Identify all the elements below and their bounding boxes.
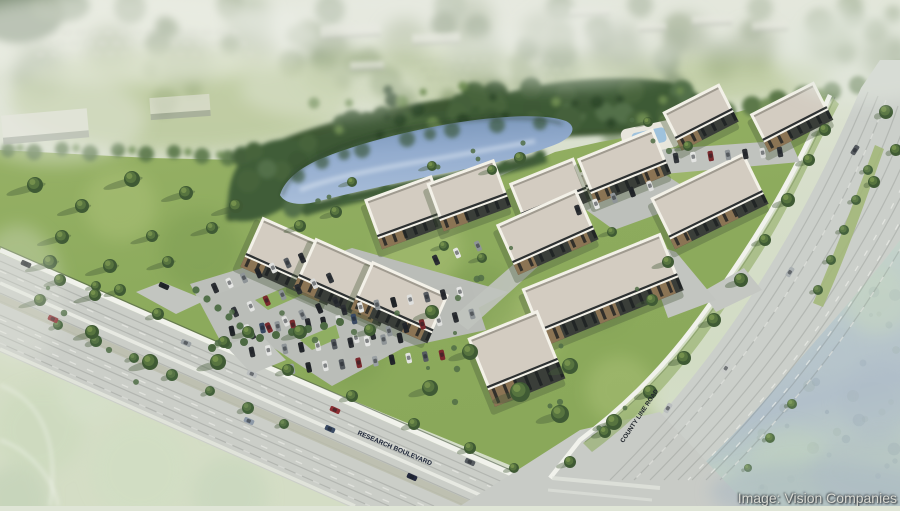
svg-text:Image: Vision Companies: Image: Vision Companies	[738, 490, 897, 506]
